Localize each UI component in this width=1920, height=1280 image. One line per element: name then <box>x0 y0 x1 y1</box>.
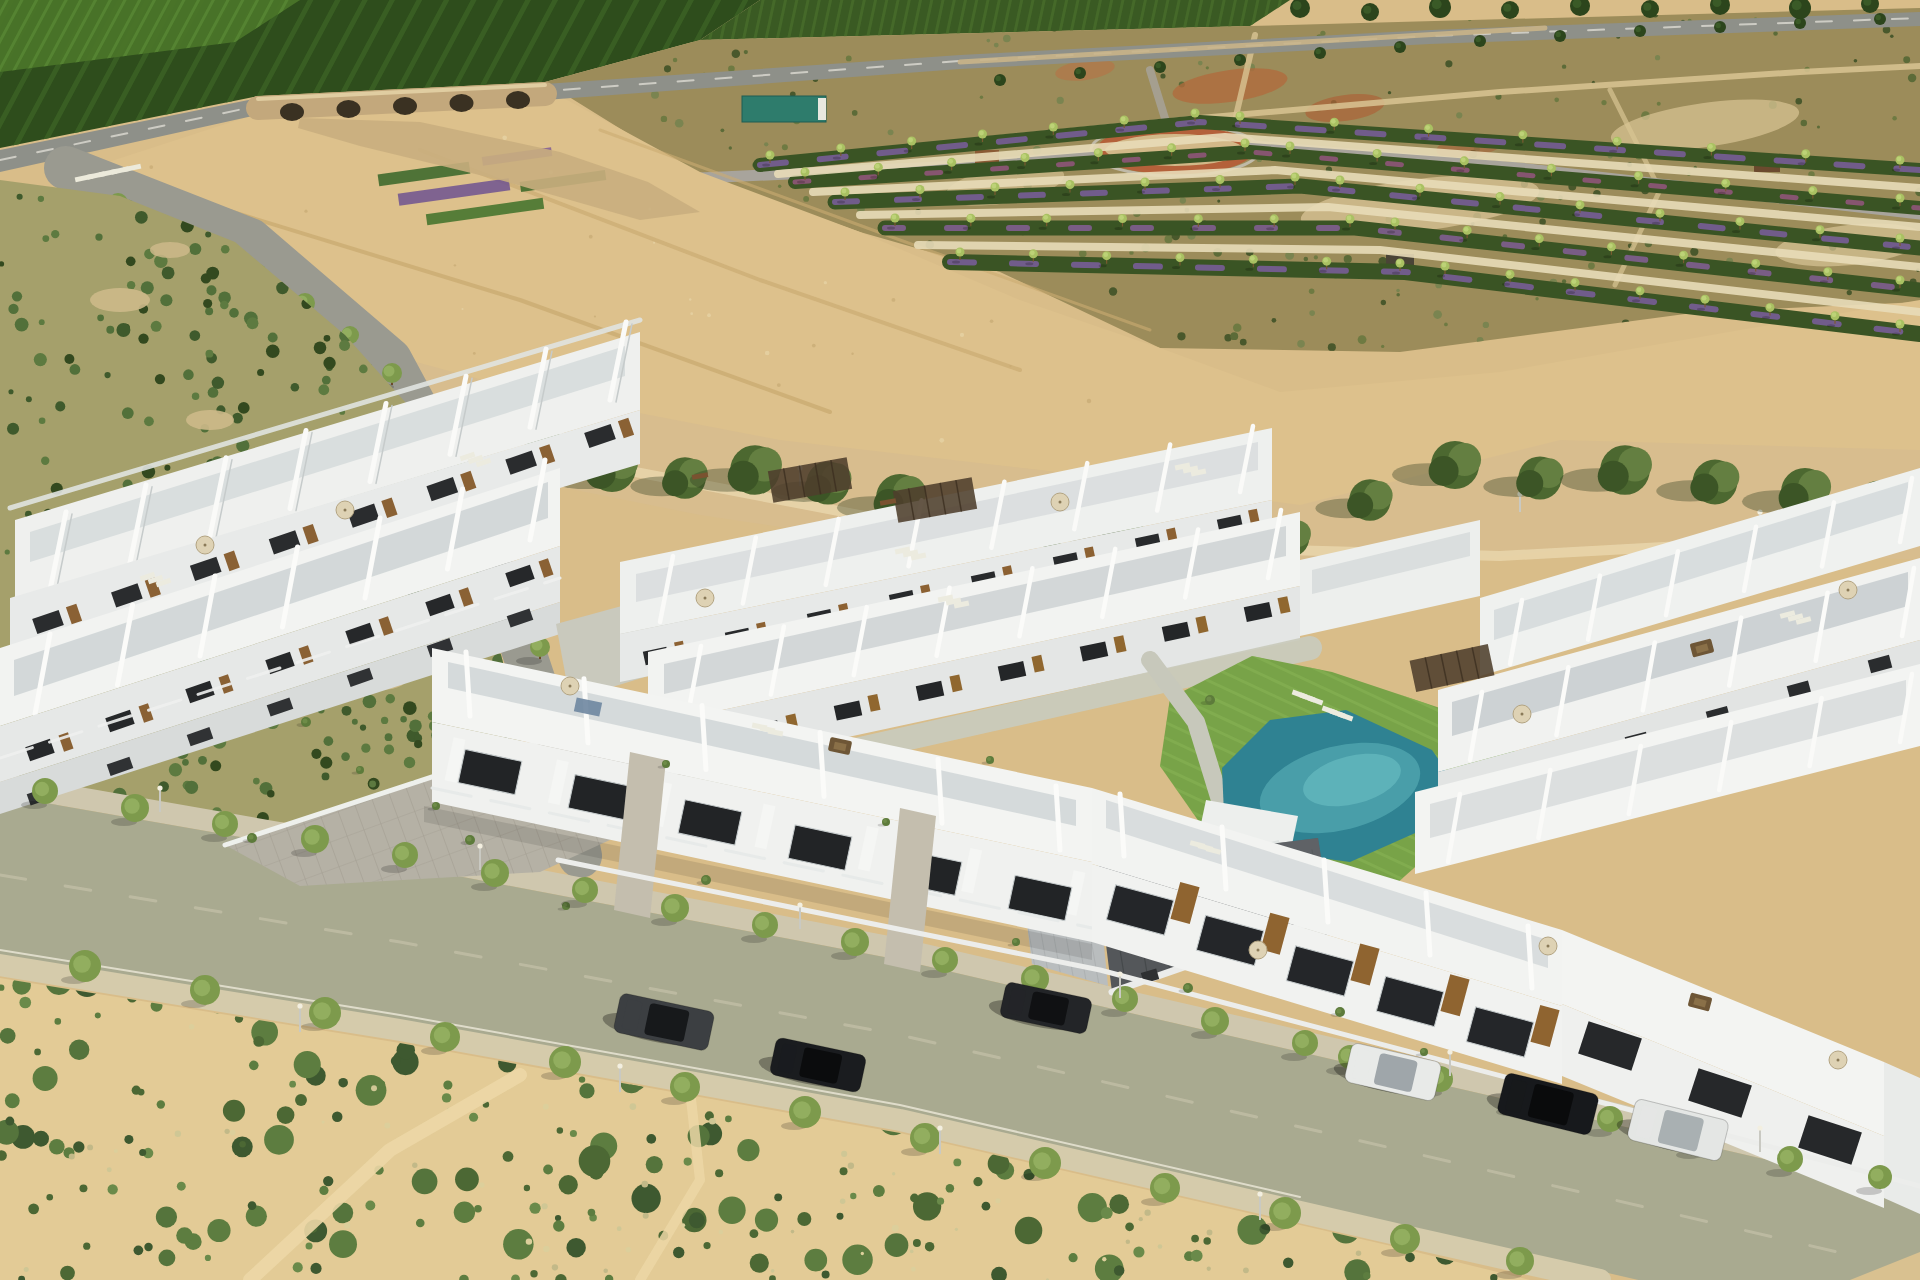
corner-unit <box>1884 1062 1920 1214</box>
grove-sand-gap <box>150 242 190 258</box>
grove-sand-gap <box>186 410 234 430</box>
green-shed-end <box>818 98 826 120</box>
green-shed <box>742 96 826 122</box>
aerial-development-photo <box>0 0 1920 1280</box>
scene-canvas <box>0 0 1920 1280</box>
grove-sand-gap <box>90 288 150 312</box>
